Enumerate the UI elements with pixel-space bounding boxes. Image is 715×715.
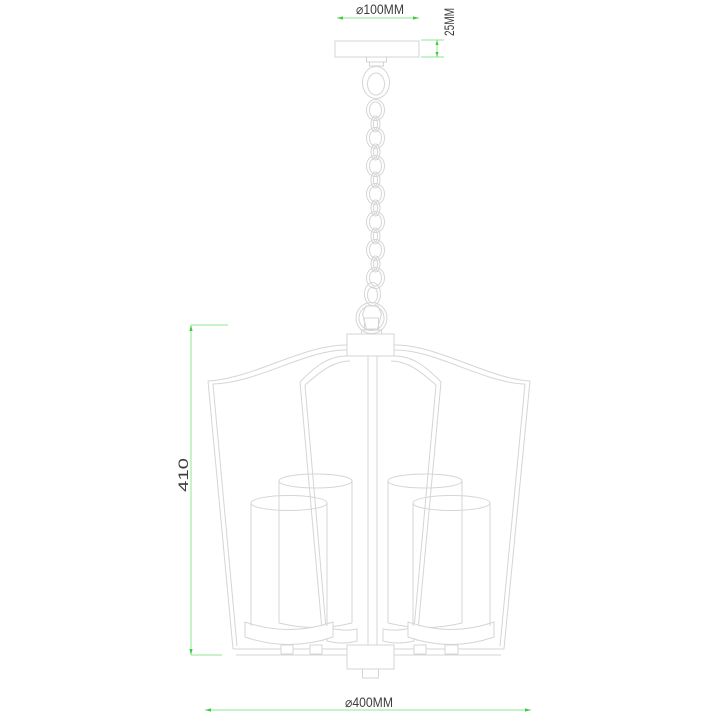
front-shade-holders xyxy=(245,622,494,645)
bottom-plate xyxy=(347,645,394,678)
dimension-arrow xyxy=(525,708,531,711)
hanging-shackle xyxy=(363,67,390,99)
frame-hub xyxy=(347,318,394,356)
dimension-arrow xyxy=(413,16,419,19)
dimension-body-width: ⌀400MM xyxy=(205,695,531,712)
dimension-arrow xyxy=(205,708,211,711)
front-lamp-shades xyxy=(251,496,490,627)
rear-lamp-shades xyxy=(279,474,462,628)
dimension-arrow xyxy=(436,40,439,45)
dimension-arrow xyxy=(436,52,439,57)
dimension-canopy-height: 25MM xyxy=(421,8,457,57)
rear-shade-holders xyxy=(327,627,414,643)
dimension-body-height: 410 xyxy=(176,325,228,655)
suspension-chain xyxy=(367,100,385,289)
dimension-label-canopy-diameter: ⌀100MM xyxy=(356,2,404,17)
center-stem xyxy=(368,356,377,645)
dimension-arrow xyxy=(189,649,192,655)
chain-collar xyxy=(367,57,387,66)
dimension-label-canopy-height: 25MM xyxy=(442,8,457,36)
dimension-label-body-height: 410 xyxy=(176,458,191,492)
technical-drawing-canvas: ⌀100MM 25MM 410 ⌀400MM xyxy=(0,0,715,715)
dimension-label-body-width: ⌀400MM xyxy=(345,695,393,710)
ceiling-canopy xyxy=(335,41,419,57)
dimension-canopy-diameter: ⌀100MM xyxy=(337,2,419,20)
technical-drawing-page: ⌀100MM 25MM 410 ⌀400MM xyxy=(0,0,715,715)
dimension-arrow xyxy=(337,16,343,19)
cage-frame xyxy=(208,381,530,649)
dimension-arrow xyxy=(189,325,192,331)
